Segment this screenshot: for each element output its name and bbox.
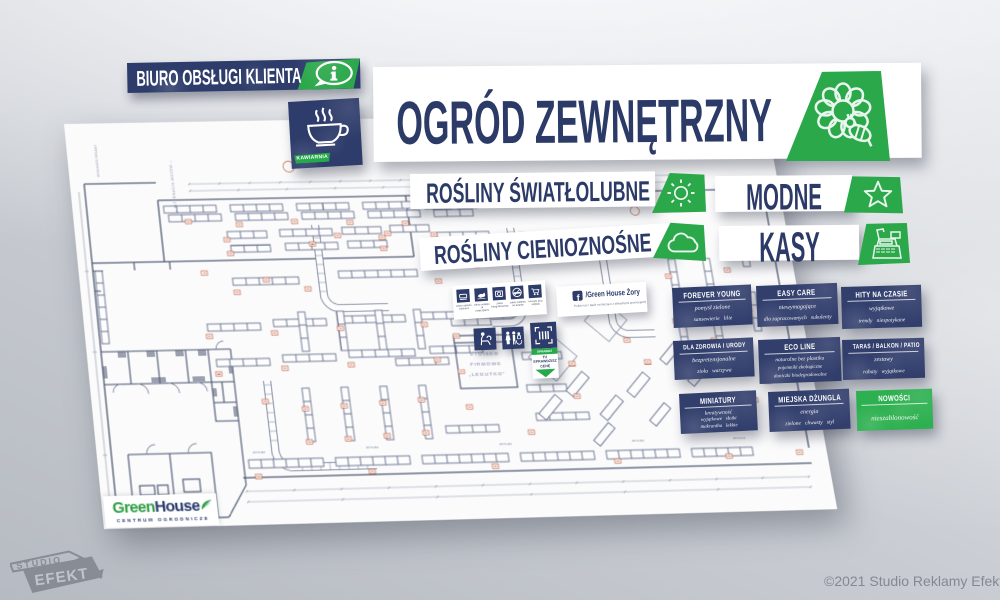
svg-text:WYS.2M: WYS.2M: [499, 442, 512, 447]
svg-text:— ALTERNACJA WOZÓW —: — ALTERNACJA WOZÓW —: [167, 159, 178, 213]
svg-text:STOISKO: STOISKO: [469, 351, 499, 358]
svg-text:WYS.2M: WYS.2M: [366, 445, 379, 450]
svg-text:WYSOKOŚĆ REGAŁU: WYSOKOŚĆ REGAŁU: [92, 144, 100, 177]
svg-text:WYS.2M: WYS.2M: [733, 436, 746, 440]
svg-text:WYS.2M: WYS.2M: [253, 450, 266, 455]
svg-text:FIRMOWE: FIRMOWE: [470, 361, 502, 368]
svg-text:WYS.2M: WYS.2M: [632, 438, 645, 443]
svg-text:„LEGUTKO”: „LEGUTKO”: [469, 371, 507, 378]
